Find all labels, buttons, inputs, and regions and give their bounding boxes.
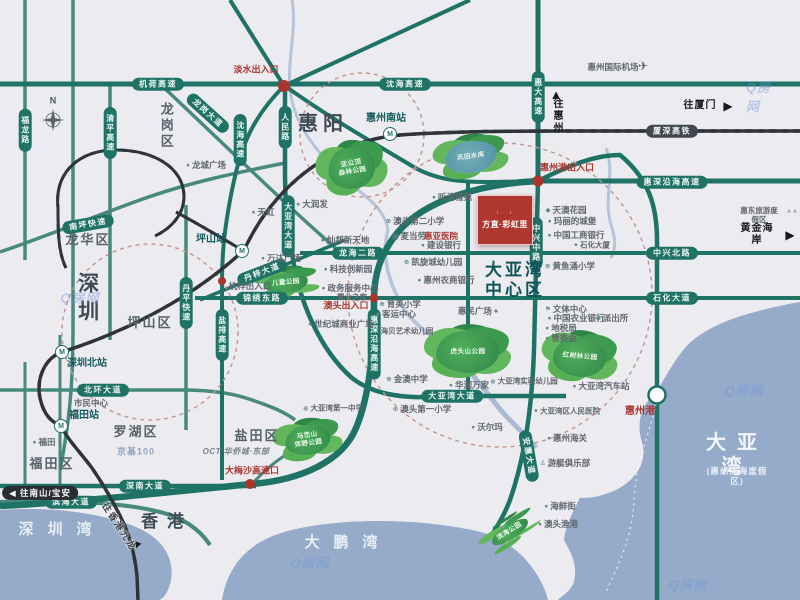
project-ornament: ∙ ı ∙ ı ∙ xyxy=(490,211,521,216)
port-interchange-icon xyxy=(649,387,666,404)
compass-icon xyxy=(42,109,64,131)
project-marker: ∙ ı ∙ ı ∙ 方直·彩虹里 xyxy=(477,195,533,245)
location-map: 亚公顶 森林公园风田水库儿童公园虎头山公园红树林公园马峦山 郊野公园滨海公园 N… xyxy=(0,0,800,600)
map-base-art xyxy=(0,0,800,600)
rivers xyxy=(289,0,614,448)
sea-shapes xyxy=(0,302,800,600)
project-name: 方直·彩虹里 xyxy=(482,219,528,230)
